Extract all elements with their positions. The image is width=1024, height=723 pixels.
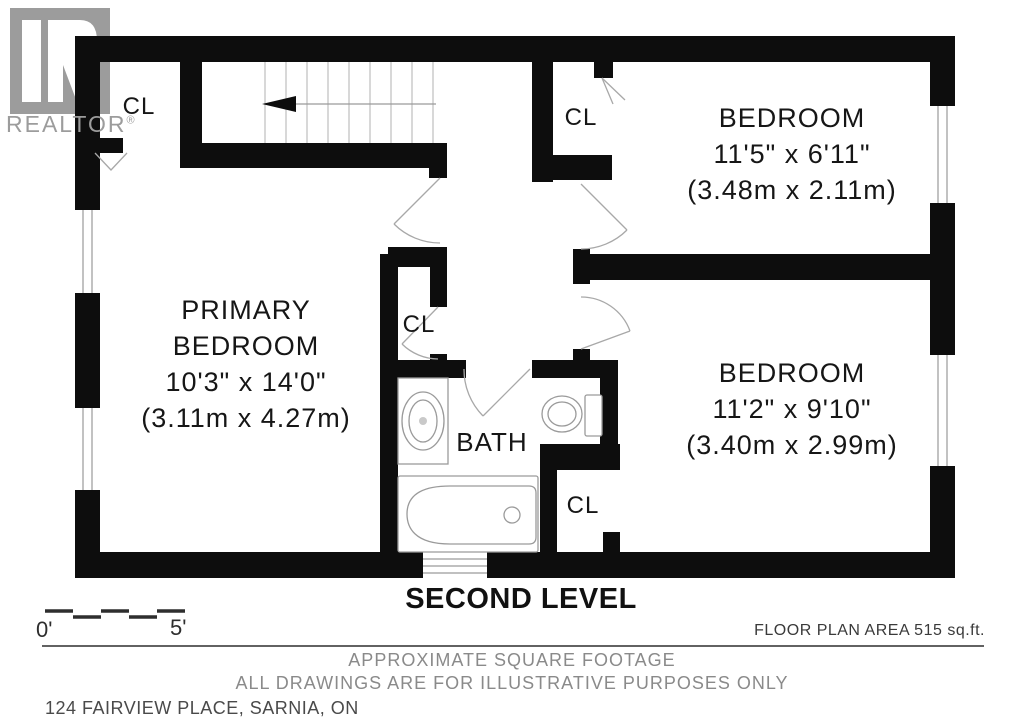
room-name: PRIMARY (141, 292, 351, 328)
window (930, 355, 955, 466)
door-swing (581, 184, 627, 249)
room-dim-metric: (3.48m x 2.11m) (687, 172, 897, 208)
window (75, 210, 100, 293)
stair-direction-arrow (262, 96, 296, 112)
toilet-icon (542, 395, 602, 436)
room-name: BEDROOM (141, 328, 351, 364)
stairs (262, 62, 436, 143)
room-dim-metric: (3.11m x 4.27m) (141, 400, 351, 436)
bathtub-icon (398, 476, 538, 552)
room-name: BEDROOM (686, 355, 898, 391)
closet-label-top-left: CL (123, 93, 156, 121)
sink-icon (398, 378, 448, 464)
property-address: 124 FAIRVIEW PLACE, SARNIA, ON (45, 698, 359, 719)
footer-disclaimer-2: ALL DRAWINGS ARE FOR ILLUSTRATIVE PURPOS… (235, 673, 788, 694)
room-name: BEDROOM (687, 100, 897, 136)
closet-label-middle: CL (403, 311, 436, 339)
room-label-bedroom-top: BEDROOM 11'5" x 6'11" (3.48m x 2.11m) (687, 100, 897, 208)
room-dim-imperial: 11'2" x 9'10" (686, 391, 898, 427)
realtor-brand-text: REALTOR (6, 111, 127, 137)
closet-door-swing (602, 78, 625, 104)
room-dim-imperial: 10'3" x 14'0" (141, 364, 351, 400)
page-title: SECOND LEVEL (405, 583, 637, 616)
room-dim-metric: (3.40m x 2.99m) (686, 427, 898, 463)
room-label-bedroom-bottom: BEDROOM 11'2" x 9'10" (3.40m x 2.99m) (686, 355, 898, 463)
closet-label-top-middle: CL (565, 104, 598, 132)
window (930, 106, 955, 203)
floor-plan-page: REALTOR® CL CL CL CL BEDROOM 11'5" x 6'1… (0, 0, 1024, 723)
window (423, 552, 487, 578)
scale-bar (45, 611, 185, 617)
room-label-primary-bedroom: PRIMARY BEDROOM 10'3" x 14'0" (3.11m x 4… (141, 292, 351, 436)
realtor-watermark-text: REALTOR® (6, 111, 135, 138)
door-swing (464, 369, 530, 416)
closet-label-bottom: CL (567, 492, 600, 520)
footer-disclaimer-1: APPROXIMATE SQUARE FOOTAGE (348, 650, 675, 671)
window (75, 408, 100, 490)
scale-end-label: 5' (170, 615, 186, 641)
scale-start-label: 0' (36, 617, 52, 643)
door-swing (581, 297, 630, 349)
room-label-bath: BATH (456, 427, 527, 458)
floor-plan-area-note: FLOOR PLAN AREA 515 sq.ft. (754, 622, 985, 640)
door-swing (394, 178, 440, 243)
room-dim-imperial: 11'5" x 6'11" (687, 136, 897, 172)
